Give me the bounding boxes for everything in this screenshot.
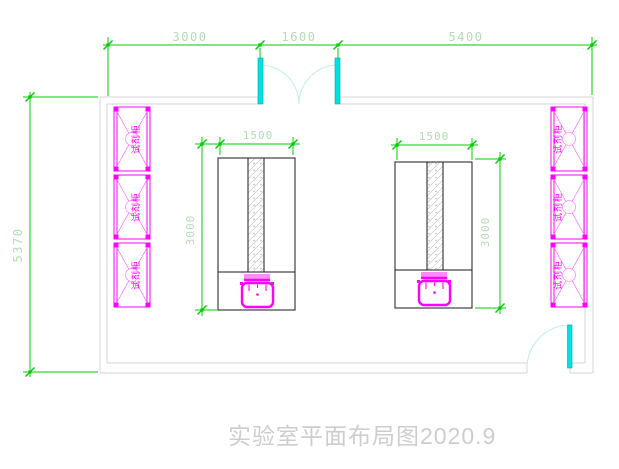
cabinet-label: 试剂柜 <box>552 124 563 154</box>
bench-right-dimensions: 1500 3000 <box>391 130 506 314</box>
cabinet-label: 试剂柜 <box>552 260 563 290</box>
cabinet-label: 试剂柜 <box>552 192 563 222</box>
dim-top-right: 5400 <box>449 30 484 44</box>
door-bottom-right <box>527 325 572 368</box>
left-dimension: 5370 <box>11 92 98 377</box>
bench-left <box>218 158 295 310</box>
cabinet-label: 试剂柜 <box>130 192 141 222</box>
room-walls <box>100 97 593 373</box>
bench-right <box>395 162 472 308</box>
dim-bench-height: 3000 <box>184 215 197 246</box>
dim-room-height: 5370 <box>11 228 25 263</box>
cabinet-column-right: 试剂柜 试剂柜 试剂柜 <box>551 107 587 307</box>
door-leaf-right <box>335 58 340 104</box>
floor-plan-canvas: 3000 1600 5400 5370 试剂柜 试剂柜 试剂柜 试剂柜 试剂柜 … <box>0 0 619 469</box>
drawing-title: 实验室平面布局图2020.9 <box>228 417 468 451</box>
dim-bench-width: 1500 <box>243 129 274 142</box>
door-leaf <box>568 325 573 368</box>
floor-plan-drawing: 3000 1600 5400 5370 试剂柜 试剂柜 试剂柜 试剂柜 试剂柜 … <box>0 0 619 469</box>
sink-right <box>417 272 451 305</box>
dim-top-left: 3000 <box>173 30 208 44</box>
cabinet-label: 试剂柜 <box>130 124 141 154</box>
door-leaf-left <box>258 58 263 104</box>
double-door-top <box>258 58 340 104</box>
sink-left <box>240 274 274 307</box>
dim-bench-width: 1500 <box>419 130 450 143</box>
dim-bench-height: 3000 <box>479 217 492 248</box>
cabinet-label: 试剂柜 <box>130 260 141 290</box>
dim-top-middle: 1600 <box>282 30 317 44</box>
cabinet-column-left: 试剂柜 试剂柜 试剂柜 <box>114 107 150 307</box>
top-dimension: 3000 1600 5400 <box>103 30 597 96</box>
